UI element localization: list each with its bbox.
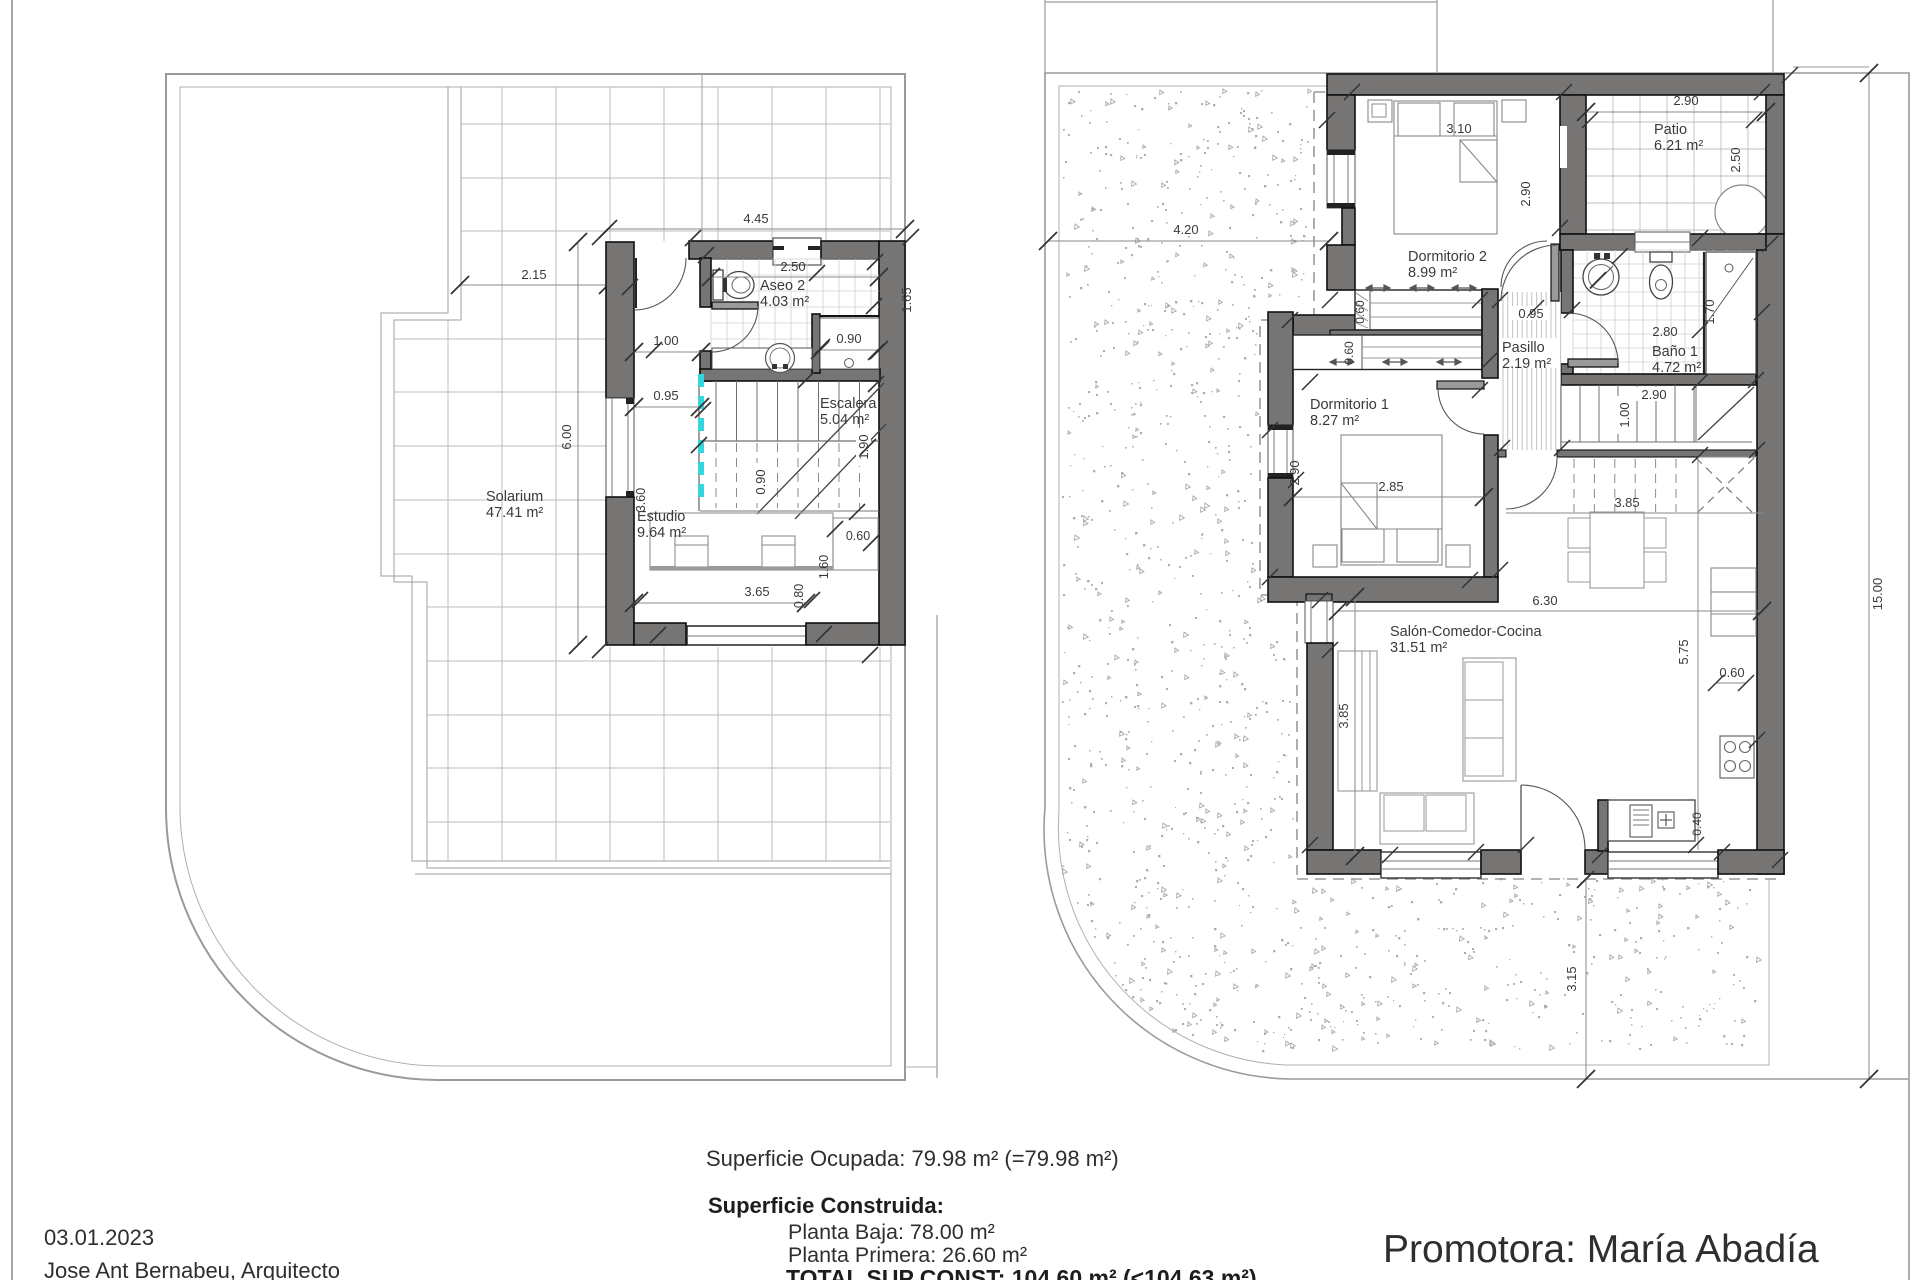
svg-text:Planta Baja: 78.00 m²: Planta Baja: 78.00 m²	[788, 1220, 995, 1244]
svg-text:Escalera: Escalera	[820, 396, 877, 412]
svg-text:3.10: 3.10	[1446, 121, 1471, 136]
svg-text:1.00: 1.00	[1617, 402, 1632, 427]
svg-text:0.40: 0.40	[1690, 812, 1704, 836]
svg-text:0.90: 0.90	[753, 469, 768, 494]
svg-text:2.50: 2.50	[1728, 147, 1743, 172]
svg-text:1.60: 1.60	[817, 555, 831, 579]
svg-text:Aseo 2: Aseo 2	[760, 278, 805, 294]
svg-text:TOTAL SUP CONST: 104.60 m² (<1: TOTAL SUP CONST: 104.60 m² (<104.63 m²)	[786, 1265, 1257, 1280]
svg-text:2.90: 2.90	[1518, 181, 1533, 206]
svg-text:5.75: 5.75	[1676, 639, 1691, 664]
svg-text:2.50: 2.50	[780, 259, 805, 274]
svg-text:Superficie Ocupada: 79.98 m² (: Superficie Ocupada: 79.98 m² (=79.98 m²)	[706, 1146, 1119, 1171]
svg-text:6.30: 6.30	[1532, 593, 1557, 608]
svg-text:Estudio: Estudio	[637, 509, 685, 525]
svg-text:3.65: 3.65	[744, 584, 769, 599]
svg-text:15.00: 15.00	[1870, 578, 1885, 611]
svg-text:9.64 m²: 9.64 m²	[637, 525, 686, 541]
svg-text:2.15: 2.15	[521, 267, 546, 282]
svg-text:4.20: 4.20	[1173, 222, 1198, 237]
svg-text:Patio: Patio	[1654, 122, 1687, 138]
svg-text:3.85: 3.85	[1336, 703, 1351, 728]
svg-text:8.99 m²: 8.99 m²	[1408, 265, 1457, 281]
svg-text:3.85: 3.85	[1614, 495, 1639, 510]
svg-text:2.80: 2.80	[1652, 324, 1677, 339]
svg-text:6.21 m²: 6.21 m²	[1654, 138, 1703, 154]
svg-text:0.60: 0.60	[846, 529, 870, 543]
svg-text:2.90: 2.90	[1673, 93, 1698, 108]
svg-text:Jose Ant Bernabeu, Arquitecto: Jose Ant Bernabeu, Arquitecto	[44, 1258, 340, 1280]
svg-text:47.41 m²: 47.41 m²	[486, 505, 543, 521]
svg-text:Planta Primera: 26.60 m²: Planta Primera: 26.60 m²	[788, 1243, 1027, 1267]
svg-text:5.04 m²: 5.04 m²	[820, 412, 869, 428]
svg-text:8.27 m²: 8.27 m²	[1310, 413, 1359, 429]
svg-text:0.60: 0.60	[1353, 300, 1367, 324]
svg-text:Pasillo: Pasillo	[1502, 340, 1545, 356]
svg-text:2.85: 2.85	[1378, 479, 1403, 494]
svg-text:0.60: 0.60	[1342, 341, 1356, 365]
svg-text:2.90: 2.90	[1641, 387, 1666, 402]
svg-text:1.65: 1.65	[899, 287, 914, 312]
svg-text:4.72 m²: 4.72 m²	[1652, 360, 1701, 376]
svg-text:4.45: 4.45	[743, 211, 768, 226]
svg-text:0.60: 0.60	[1719, 665, 1744, 680]
svg-text:Salón-Comedor-Cocina: Salón-Comedor-Cocina	[1390, 624, 1542, 640]
svg-text:2.19 m²: 2.19 m²	[1502, 356, 1551, 372]
svg-text:Baño 1: Baño 1	[1652, 344, 1698, 360]
svg-text:Solarium: Solarium	[486, 489, 543, 505]
svg-text:Dormitorio 1: Dormitorio 1	[1310, 397, 1389, 413]
svg-text:Dormitorio 2: Dormitorio 2	[1408, 249, 1487, 265]
svg-text:1.70: 1.70	[1702, 299, 1717, 324]
svg-text:4.03 m²: 4.03 m²	[760, 294, 809, 310]
svg-text:03.01.2023: 03.01.2023	[44, 1225, 154, 1250]
svg-text:Promotora: María Abadía: Promotora: María Abadía	[1383, 1228, 1819, 1271]
svg-text:0.95: 0.95	[653, 388, 678, 403]
svg-text:Superficie Construida:: Superficie Construida:	[708, 1193, 944, 1218]
svg-text:6.00: 6.00	[559, 424, 574, 449]
svg-text:31.51 m²: 31.51 m²	[1390, 640, 1447, 656]
svg-text:0.90: 0.90	[836, 331, 861, 346]
svg-text:3.15: 3.15	[1564, 966, 1579, 991]
svg-text:0.80: 0.80	[792, 584, 806, 608]
